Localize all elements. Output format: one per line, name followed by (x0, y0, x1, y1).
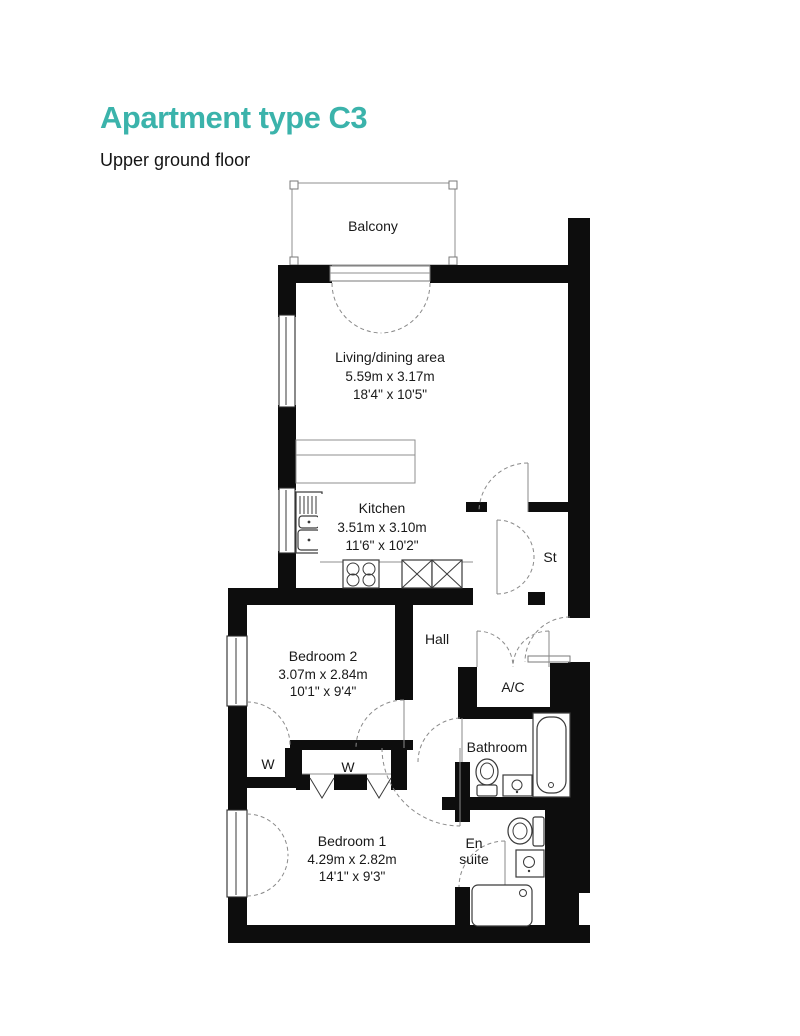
bedroom2-wardrobe-door (247, 702, 290, 745)
ensuite-toilet (508, 817, 544, 846)
living-window-lower (279, 488, 295, 553)
floorplan-page: Apartment type C3 Upper ground floor (0, 0, 800, 1036)
ac-label: A/C (501, 679, 524, 695)
bedroom2-label: Bedroom 2 3.07m x 2.84m 10'1" x 9'4" (278, 648, 367, 699)
ensuite-shower (472, 885, 532, 926)
bedroom1-imperial: 14'1" x 9'3" (319, 869, 386, 884)
hall-label: Hall (425, 631, 449, 647)
ensuite-name-line2: suite (459, 851, 489, 867)
balcony-door-frame (330, 266, 430, 281)
balcony-doors (332, 283, 430, 333)
bedroom1-name: Bedroom 1 (318, 833, 387, 849)
bathroom-door (418, 718, 462, 762)
entry-door (525, 617, 570, 662)
floorplan-drawing: Balcony Living/dining area 5.59m x 3.17m… (0, 0, 800, 1036)
wall-notch (579, 893, 590, 925)
bedroom2-window (227, 636, 247, 706)
kitchen-base-units (402, 560, 462, 588)
bathtub (533, 713, 570, 797)
kitchen-metric: 3.51m x 3.10m (337, 520, 426, 535)
kitchen-name: Kitchen (359, 500, 406, 516)
living-label: Living/dining area 5.59m x 3.17m 18'4" x… (335, 349, 445, 402)
bathroom-toilet (476, 759, 498, 796)
storage-label: St (543, 549, 556, 565)
living-window-upper (279, 315, 295, 407)
living-metric: 5.59m x 3.17m (345, 369, 434, 384)
hob (343, 560, 379, 588)
bedroom1-window (227, 810, 288, 897)
ensuite-label: En suite (459, 835, 489, 867)
living-name: Living/dining area (335, 349, 445, 365)
bedroom1-metric: 4.29m x 2.82m (307, 852, 396, 867)
bedroom1-label: Bedroom 1 4.29m x 2.82m 14'1" x 9'3" (307, 833, 396, 884)
ensuite-name-line1: En (465, 835, 482, 851)
bathroom-vanity (503, 775, 532, 796)
balcony-label: Balcony (348, 218, 398, 234)
bedroom2-metric: 3.07m x 2.84m (278, 667, 367, 682)
wardrobe2-label: W (341, 759, 355, 775)
ensuite-basin (516, 850, 544, 877)
living-imperial: 18'4" x 10'5" (353, 387, 427, 402)
bedroom2-imperial: 10'1" x 9'4" (290, 684, 357, 699)
kitchen-imperial: 11'6" x 10'2" (345, 538, 418, 553)
storage-doors (497, 520, 534, 594)
bathroom-label: Bathroom (467, 739, 528, 755)
wardrobe1-label: W (261, 756, 275, 772)
bedroom2-name: Bedroom 2 (289, 648, 358, 664)
